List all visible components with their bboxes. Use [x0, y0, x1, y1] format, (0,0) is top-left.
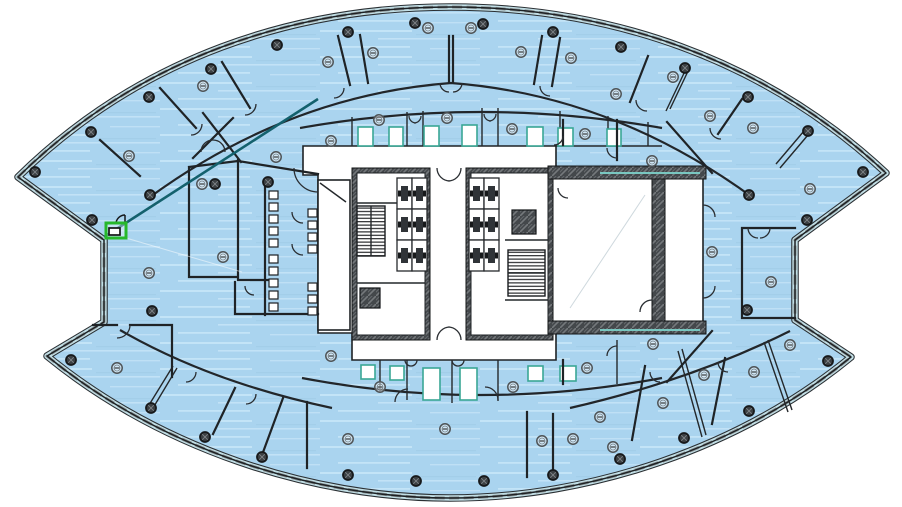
column-marker [210, 179, 220, 189]
elevator-car [473, 248, 480, 263]
column-marker [823, 356, 833, 366]
column-marker [206, 64, 216, 74]
device-marker[interactable] [749, 367, 759, 377]
wall-fixture [308, 209, 317, 217]
device-marker[interactable] [507, 124, 517, 134]
toilet-stall [269, 303, 278, 311]
device-marker[interactable] [197, 179, 207, 189]
column-marker [680, 63, 690, 73]
device-marker[interactable] [658, 398, 668, 408]
shaft-box-left [360, 288, 380, 308]
device-marker[interactable] [323, 57, 333, 67]
device-marker[interactable] [144, 268, 154, 278]
toilet-stall [269, 279, 278, 287]
toilet-stall [269, 215, 278, 223]
column-marker [145, 190, 155, 200]
device-marker[interactable] [466, 23, 476, 33]
column-marker [744, 406, 754, 416]
column-marker [743, 92, 753, 102]
device-marker[interactable] [271, 152, 281, 162]
device-marker[interactable] [748, 123, 758, 133]
tall-room-left [318, 180, 350, 330]
device-marker[interactable] [707, 247, 717, 257]
elevator-car [416, 186, 423, 201]
toilet-stall [269, 291, 278, 299]
device-marker[interactable] [608, 442, 618, 452]
device-marker[interactable] [766, 277, 776, 287]
device-marker[interactable] [343, 434, 353, 444]
elevator-car [401, 186, 408, 201]
device-marker[interactable] [537, 436, 547, 446]
column-marker [742, 305, 752, 315]
toilet-stall [269, 191, 278, 199]
device-marker[interactable] [668, 72, 678, 82]
wall-fixture [308, 221, 317, 229]
device-marker[interactable] [611, 89, 621, 99]
elevator-bank [469, 178, 499, 271]
device-marker[interactable] [423, 23, 433, 33]
wall-fixture [308, 245, 317, 253]
column-marker [144, 92, 154, 102]
elevator-bank [397, 178, 427, 271]
column-marker [147, 306, 157, 316]
wall-fixture [308, 233, 317, 241]
column-marker [548, 470, 558, 480]
device-marker[interactable] [568, 434, 578, 444]
device-marker[interactable] [326, 351, 336, 361]
device-marker[interactable] [699, 370, 709, 380]
column-marker [410, 18, 420, 28]
column-marker [616, 42, 626, 52]
column-marker [200, 432, 210, 442]
device-marker[interactable] [198, 81, 208, 91]
toilet-stall [269, 239, 278, 247]
column-marker [86, 127, 96, 137]
column-marker [478, 19, 488, 29]
toilet-stall [269, 203, 278, 211]
column-marker [146, 403, 156, 413]
device-marker[interactable] [368, 48, 378, 58]
device-marker[interactable] [580, 129, 590, 139]
device-marker[interactable] [566, 53, 576, 63]
column-marker [803, 126, 813, 136]
device-marker[interactable] [785, 340, 795, 350]
device-marker[interactable] [326, 136, 336, 146]
column-marker [479, 476, 489, 486]
column-marker [30, 167, 40, 177]
column-marker [548, 27, 558, 37]
device-marker[interactable] [705, 111, 715, 121]
device-marker[interactable] [124, 151, 134, 161]
device-marker[interactable] [582, 363, 592, 373]
elevator-car [416, 248, 423, 263]
column-marker [257, 452, 267, 462]
floor-plan-canvas [0, 0, 902, 507]
device-marker[interactable] [440, 424, 450, 434]
elevator-car [416, 217, 423, 232]
column-marker [272, 40, 282, 50]
device-marker[interactable] [805, 184, 815, 194]
column-marker [679, 433, 689, 443]
column-marker [802, 215, 812, 225]
column-marker [343, 470, 353, 480]
device-marker[interactable] [516, 47, 526, 57]
device-marker[interactable] [375, 382, 385, 392]
device-marker[interactable] [508, 382, 518, 392]
elevator-car [488, 186, 495, 201]
device-marker[interactable] [647, 156, 657, 166]
elevator-car [401, 248, 408, 263]
wall-fixture [308, 283, 317, 291]
elevator-car [401, 217, 408, 232]
device-marker[interactable] [218, 252, 228, 262]
column-marker [615, 454, 625, 464]
column-marker [744, 190, 754, 200]
column-marker [411, 476, 421, 486]
device-marker[interactable] [374, 115, 384, 125]
elevator-car [488, 248, 495, 263]
elevator-car [473, 217, 480, 232]
highlighted-device-icon [109, 228, 120, 235]
column-marker [263, 177, 273, 187]
column-marker [858, 167, 868, 177]
device-marker[interactable] [648, 339, 658, 349]
toilet-stall [269, 267, 278, 275]
elevator-car [488, 217, 495, 232]
device-marker[interactable] [595, 412, 605, 422]
wall-fixture [308, 295, 317, 303]
device-marker[interactable] [442, 113, 452, 123]
floor-plan-svg [0, 0, 902, 507]
column-marker [66, 355, 76, 365]
device-marker[interactable] [112, 363, 122, 373]
column-marker [87, 215, 97, 225]
toilet-stall [269, 227, 278, 235]
wall-fixture [308, 307, 317, 315]
toilet-stall [269, 255, 278, 263]
elevator-car [473, 186, 480, 201]
column-marker [343, 27, 353, 37]
shaft-box-right [512, 210, 536, 234]
